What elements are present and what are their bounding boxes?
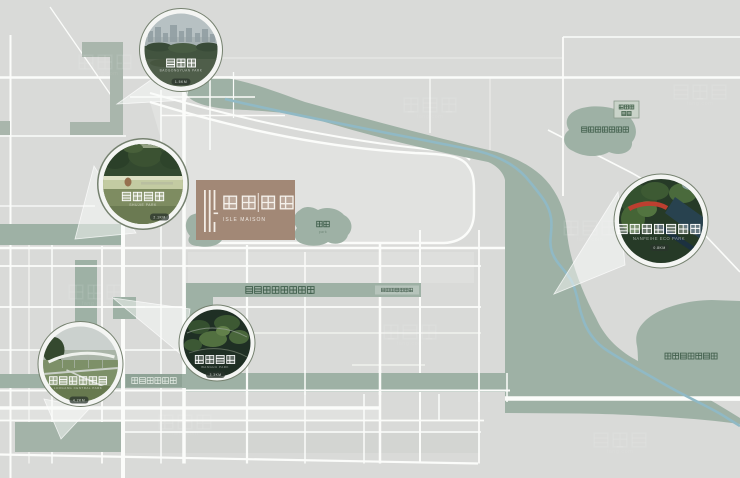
svg-text:4.2KM: 4.2KM [73, 399, 85, 403]
svg-text:fang.com: fang.com [607, 449, 634, 455]
svg-text:fang.com: fang.com [687, 101, 714, 107]
svg-text:fang.com: fang.com [577, 237, 604, 243]
svg-text:WANGHU PARK: WANGHU PARK [201, 365, 229, 369]
svg-text:ISLE MAISON: ISLE MAISON [223, 217, 266, 223]
svg-text:3.3KM: 3.3KM [210, 373, 222, 377]
svg-text:2.1KM: 2.1KM [153, 216, 165, 220]
svg-text:fang.com: fang.com [417, 114, 444, 120]
svg-text:BAOGONGYUAN PARK: BAOGONGYUAN PARK [160, 69, 203, 73]
svg-text:fang.com: fang.com [397, 341, 424, 347]
svg-text:fang.com: fang.com [92, 71, 119, 77]
svg-text:park: park [319, 230, 327, 234]
svg-text:SHUJIE PARK: SHUJIE PARK [129, 203, 157, 207]
svg-text:NANFEIHE ECO PARK: NANFEIHE ECO PARK [633, 236, 685, 241]
svg-text:1.5KM: 1.5KM [175, 80, 187, 84]
svg-text:fang.com: fang.com [82, 301, 109, 307]
svg-text:LUOGANG CENTRAL PARK: LUOGANG CENTRAL PARK [54, 386, 103, 390]
svg-text:0.8KM: 0.8KM [653, 246, 665, 250]
svg-text:fang.com: fang.com [172, 431, 199, 437]
